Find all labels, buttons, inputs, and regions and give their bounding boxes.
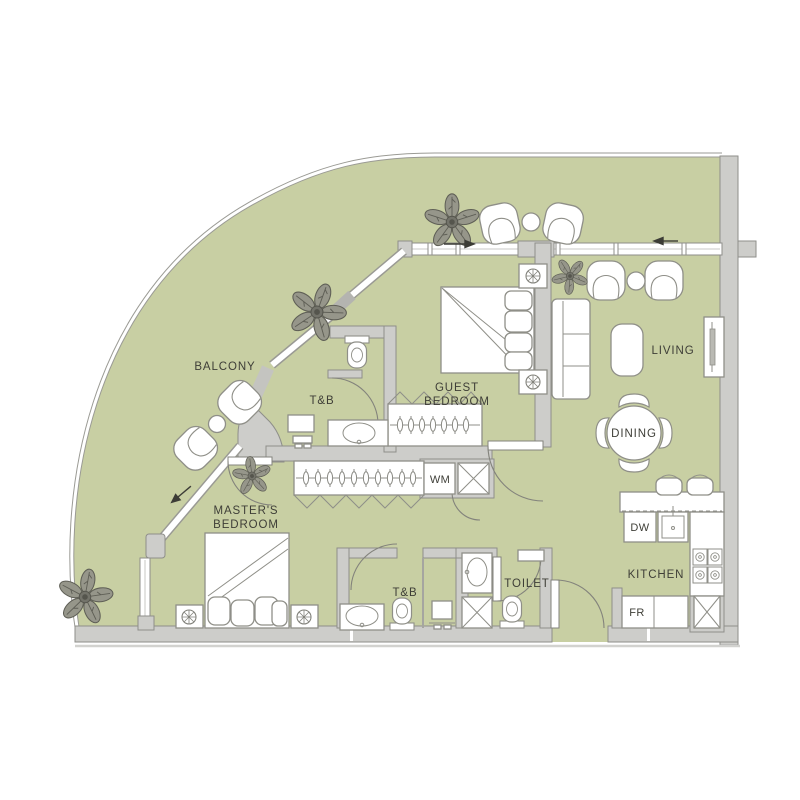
guest-nightstand [519,264,547,288]
living-label: LIVING [651,345,694,357]
master-tb-vanity [340,604,384,630]
utility-shaft [458,463,489,494]
guest-bedroom-label: BEDROOM [424,396,490,408]
guest-tb-toilet [345,336,369,368]
side-table [627,272,645,290]
guest-bed [441,287,534,373]
kitchen-wall-stub [612,588,622,628]
master-tb-toilet [390,598,414,630]
living-armchair [645,261,683,300]
master-nightstand [176,605,203,628]
kitchen-shaft [694,596,720,628]
wall-joint [647,627,650,641]
master-tb-label: T&B [392,587,417,599]
guest-tb-vanity [328,420,388,446]
dishwasher: DW [624,512,656,542]
guest-nightstand [519,370,547,394]
toilet-shelf [518,550,544,561]
kitchen-sink [658,506,688,542]
sofa [552,299,590,399]
balcony-label: BALCONY [194,361,255,373]
master-nightstand [291,605,318,628]
dining-label: DINING [611,428,657,440]
refrigerator-label: FR [629,607,644,619]
bar-stool [656,475,682,495]
masters-bedroom-label: BEDROOM [213,519,279,531]
bar-stool [687,475,713,495]
living-armchair [587,261,625,300]
toilet-label: TOILET [504,578,549,590]
master-bed [205,533,289,628]
dishwasher-label: DW [630,522,649,534]
kitchen-label: KITCHEN [628,569,685,581]
tv-console [704,317,724,377]
balcony-table [522,213,540,231]
toilet-wc [500,596,524,628]
balcony-table [209,416,226,433]
floor-plan-page: WM GUEST BEDROOM MASTER'S BED [0,0,800,800]
floor-plan: WM GUEST BEDROOM MASTER'S BED [0,0,800,800]
washing-machine-label: WM [430,474,450,486]
guest-tb-label: T&B [309,395,334,407]
guest-bedroom-label: GUEST [435,382,479,394]
refrigerator: FR [622,596,688,628]
right-wall-stub [738,241,756,257]
coffee-table [611,324,643,376]
masters-bedroom-label: MASTER'S [214,505,279,517]
toilet-vanity [462,553,492,593]
toilet-shaft [462,597,492,628]
washing-machine: WM [424,463,455,494]
